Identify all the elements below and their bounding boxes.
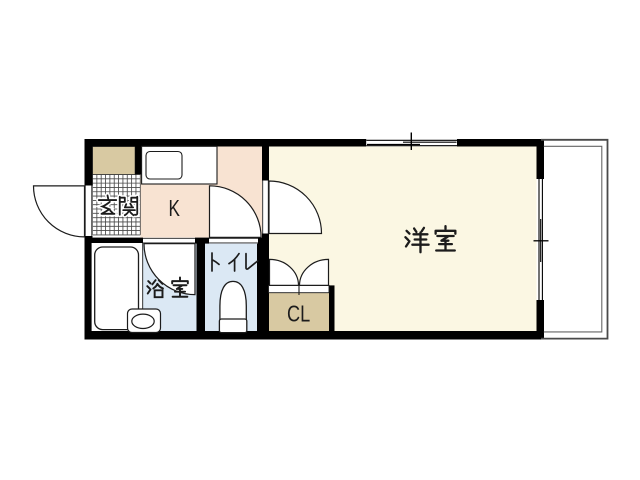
svg-text:K: K <box>169 195 181 221</box>
svg-text:CL: CL <box>287 300 310 326</box>
